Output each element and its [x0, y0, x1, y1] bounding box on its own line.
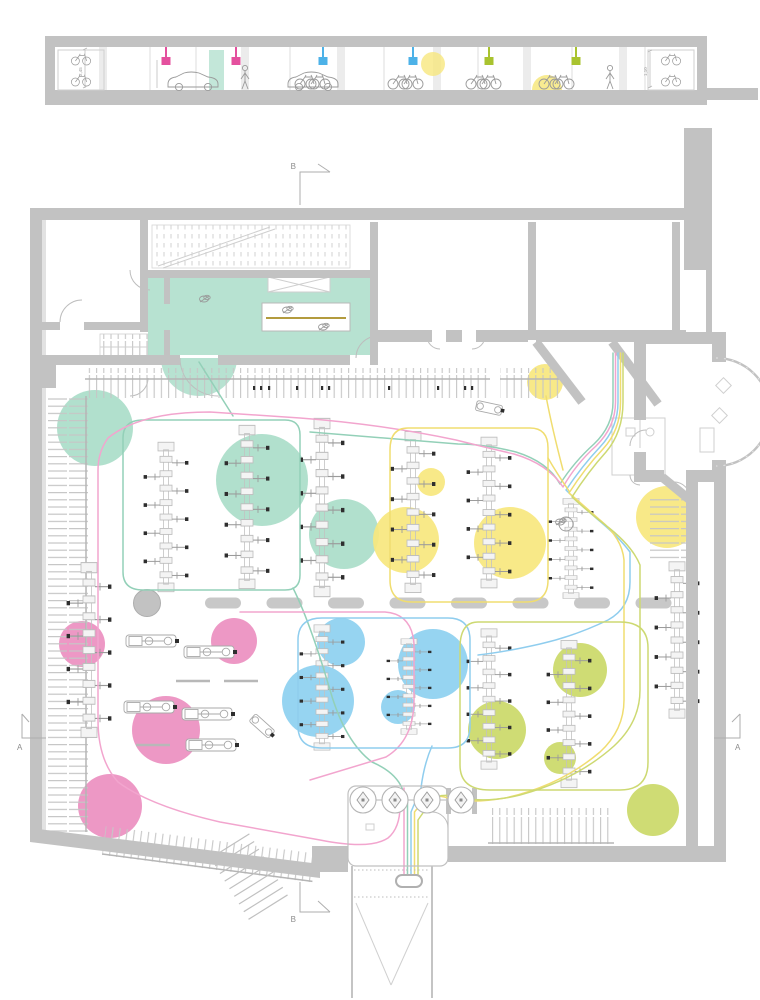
wall-rack-row — [48, 396, 88, 832]
column-pillar — [134, 590, 161, 617]
dimension-label: 2,45 — [78, 67, 83, 76]
wall-rack-row — [85, 368, 490, 398]
section-teal-band — [209, 50, 224, 90]
section-marker-B-top: B — [291, 162, 330, 205]
section-slab-stub — [702, 88, 758, 100]
section-marker-label: B — [291, 162, 296, 171]
lime-zone-circle — [627, 784, 679, 836]
lime-zone-circle — [468, 701, 526, 759]
cross-box — [268, 277, 330, 292]
route-line-blue — [478, 353, 630, 655]
section-marker-B-bottom: B — [291, 882, 330, 924]
wall-rack-row — [492, 808, 612, 844]
yellow-zone-circle — [373, 507, 439, 573]
dimension-label: 1,10 — [643, 67, 648, 76]
section-drawing: 2,45 1,10 — [45, 36, 758, 105]
section-marker-label: A — [735, 743, 741, 752]
bike-parking-drawing: 2,45 1,10 — [0, 0, 760, 1000]
ramp — [352, 866, 432, 998]
wall-rack-row — [500, 368, 562, 398]
median-strip — [134, 590, 672, 617]
section-marker-label: A — [17, 743, 23, 752]
wall-rack-row — [650, 498, 686, 564]
floor-plan: B B A A — [17, 128, 760, 998]
section-interior — [55, 47, 697, 90]
reception-desk — [262, 303, 350, 331]
yellow-zone-circle — [417, 468, 445, 496]
entrance-lobby — [700, 378, 731, 452]
section-yellow-glow — [421, 52, 445, 76]
route-end-marker — [396, 875, 422, 887]
architectural-drawing: 2,45 1,10 — [0, 0, 760, 1000]
section-marker-label: B — [291, 915, 296, 924]
